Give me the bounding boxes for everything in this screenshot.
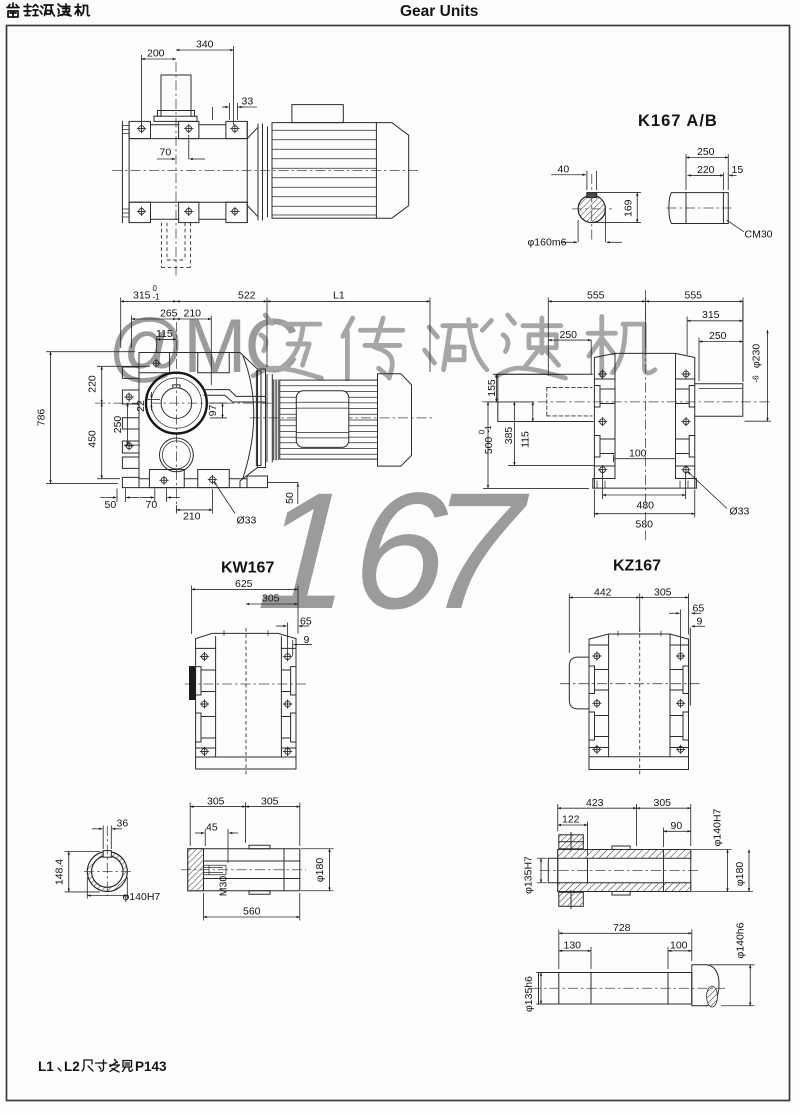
svg-text:L1: L1 [38, 1059, 54, 1074]
svg-text:φ140h6: φ140h6 [735, 922, 747, 958]
svg-text:625: 625 [235, 578, 253, 590]
svg-text:250: 250 [112, 416, 124, 434]
svg-text:φ160m6: φ160m6 [528, 237, 567, 249]
svg-text:340: 340 [196, 39, 214, 51]
svg-text:9: 9 [697, 616, 703, 628]
svg-text:305: 305 [654, 797, 672, 809]
svg-text:500: 500 [483, 437, 495, 455]
svg-text:φ135h6: φ135h6 [523, 976, 535, 1012]
svg-text:555: 555 [685, 290, 703, 302]
svg-text:45: 45 [206, 822, 218, 834]
svg-text:Ø33: Ø33 [730, 506, 750, 518]
svg-text:155: 155 [486, 379, 498, 397]
svg-text:70: 70 [160, 147, 172, 159]
svg-text:φ140H7: φ140H7 [712, 808, 724, 846]
svg-text:385: 385 [503, 427, 515, 445]
svg-text:265: 265 [160, 307, 178, 319]
svg-text:50: 50 [284, 492, 296, 504]
svg-text:-6: -6 [752, 375, 761, 383]
svg-text:220: 220 [87, 375, 99, 393]
svg-text:305: 305 [261, 796, 279, 808]
svg-text:φ180: φ180 [314, 858, 326, 882]
svg-text:KW167: KW167 [221, 560, 274, 577]
svg-text:65: 65 [300, 616, 312, 628]
svg-text:Gear Units: Gear Units [400, 3, 478, 20]
svg-text:210: 210 [183, 511, 201, 523]
svg-text:0: 0 [478, 429, 487, 434]
svg-text:305: 305 [262, 593, 280, 605]
svg-text:15: 15 [732, 164, 744, 176]
svg-text:315: 315 [133, 290, 151, 302]
svg-text:315: 315 [702, 309, 720, 321]
svg-text:522: 522 [238, 290, 256, 302]
svg-text:φ140H7: φ140H7 [123, 891, 161, 903]
svg-text:480: 480 [637, 500, 655, 512]
svg-text:97: 97 [207, 405, 219, 417]
svg-text:786: 786 [36, 409, 48, 427]
svg-text:65: 65 [693, 603, 705, 615]
svg-text:115: 115 [156, 328, 173, 340]
svg-text:33: 33 [242, 96, 254, 108]
svg-text:580: 580 [636, 519, 654, 531]
svg-text:7: 7 [424, 459, 532, 644]
svg-text:423: 423 [586, 797, 604, 809]
svg-text:90: 90 [671, 820, 683, 832]
svg-text:L2: L2 [64, 1059, 80, 1074]
svg-text:40: 40 [558, 164, 570, 176]
svg-text:450: 450 [87, 430, 99, 448]
svg-text:115: 115 [520, 431, 532, 448]
svg-text:L1: L1 [333, 290, 345, 302]
svg-text:169: 169 [623, 199, 635, 217]
svg-text:555: 555 [587, 290, 605, 302]
svg-text:KZ167: KZ167 [613, 558, 661, 575]
svg-text:100: 100 [670, 940, 688, 952]
svg-text:CM30: CM30 [745, 229, 773, 241]
svg-text:φ230: φ230 [751, 344, 763, 368]
svg-text:122: 122 [562, 814, 580, 826]
svg-text:728: 728 [613, 922, 631, 934]
svg-text:P143: P143 [135, 1059, 167, 1074]
svg-text:Ø33: Ø33 [237, 515, 257, 527]
svg-text:22: 22 [135, 400, 147, 412]
svg-text:148.4: 148.4 [54, 859, 66, 885]
svg-text:250: 250 [560, 329, 578, 341]
svg-text:130: 130 [564, 940, 582, 952]
svg-text:φ135H7: φ135H7 [523, 856, 535, 894]
svg-text:442: 442 [594, 587, 612, 599]
svg-text:210: 210 [184, 307, 202, 319]
svg-text:305: 305 [654, 587, 672, 599]
svg-text:560: 560 [243, 906, 261, 918]
svg-text:250: 250 [697, 146, 715, 158]
svg-text:K167 A/B: K167 A/B [638, 112, 718, 130]
svg-text:9: 9 [304, 634, 310, 646]
svg-text:M30: M30 [218, 876, 230, 897]
svg-text:36: 36 [117, 818, 129, 830]
svg-text:220: 220 [697, 164, 715, 176]
svg-text:-1: -1 [153, 293, 161, 302]
svg-text:305: 305 [207, 796, 225, 808]
svg-text:250: 250 [709, 330, 727, 342]
svg-text:100: 100 [629, 447, 647, 459]
svg-text:200: 200 [147, 48, 165, 60]
svg-text:70: 70 [146, 499, 158, 511]
svg-text:50: 50 [105, 499, 117, 511]
svg-text:φ180: φ180 [734, 862, 746, 886]
